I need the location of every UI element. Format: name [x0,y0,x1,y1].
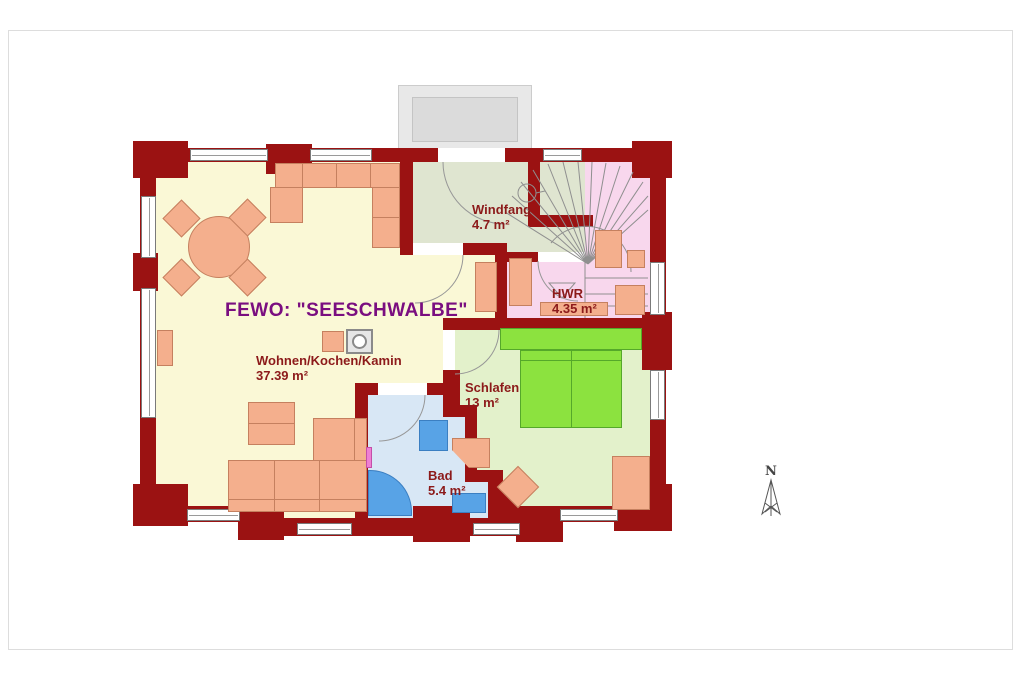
kitchen-counter [302,163,337,188]
room-bad-fill [368,417,465,470]
room-label-hwr: HWR 4.35 m² [552,286,597,316]
window [141,196,156,258]
entrance-canopy-inner [412,97,518,142]
wall-living-windfang [400,162,413,255]
fireplace-icon [346,329,373,354]
room-name: Wohnen/Kochen/Kamin [256,353,402,368]
sofa-seam [274,461,275,511]
toilet [419,420,448,451]
wall-pilaster [133,253,158,291]
room-area: 5.4 m² [428,483,466,498]
door-opening-living [413,243,463,255]
door-opening-hwr [538,252,578,262]
door-opening-entrance [438,148,505,162]
wall-bad-top [427,383,450,395]
hwr-cabinet [509,258,532,306]
towel-radiator [366,447,372,468]
bed-line [521,360,621,361]
hwr-appliance [627,250,645,268]
room-name: Windfang [472,202,531,217]
window [297,523,352,535]
room-area: 4.7 m² [472,217,531,232]
window [141,288,156,418]
window [190,149,268,161]
room-label-schlafen: Schlafen 13 m² [465,380,519,410]
window [650,262,665,315]
window [650,370,665,420]
window [543,149,582,161]
fireplace-ring [352,334,367,349]
floor-plan-page: FEWO: "SEESCHWALBE" Wohnen/Kochen/Kamin … [0,0,1024,683]
hwr-appliance [595,230,622,268]
sideboard [157,330,173,366]
kitchen-counter [372,217,400,248]
hwr-appliance [615,285,645,315]
door-opening-bad [378,383,427,395]
wall-pilaster [133,484,188,526]
wall-stair-stub [528,215,593,227]
room-bad-fill [368,395,443,417]
room-label-wohnen: Wohnen/Kochen/Kamin 37.39 m² [256,353,402,383]
wall-bad-schlafen [465,470,503,482]
wall-pilaster [516,506,563,542]
compass-north-label: N [765,464,777,479]
room-label-windfang: Windfang 4.7 m² [472,202,531,232]
room-area: 13 m² [465,395,519,410]
room-name: HWR [552,286,597,301]
kitchen-counter [372,187,400,218]
wall-pilaster [632,141,672,178]
window [473,523,520,535]
window [310,149,372,161]
room-label-bad: Bad 5.4 m² [428,468,466,498]
kitchen-counter [336,163,371,188]
wood-basket [322,331,344,352]
kitchen-counter [370,163,400,188]
wall-pilaster [133,141,188,178]
window [560,509,618,521]
room-name: Bad [428,468,466,483]
coffee-table-line [249,423,294,424]
bed-center-line [571,351,572,427]
plan-title: FEWO: "SEESCHWALBE" [225,300,468,322]
bedroom-wardrobe [612,456,650,510]
hall-cabinet [475,262,497,312]
sofa [228,460,367,512]
bed-headboard [500,328,642,350]
kitchen-counter [270,187,303,223]
room-area: 4.35 m² [552,301,597,316]
room-windfang-fill [528,227,590,252]
room-name: Schlafen [465,380,519,395]
kitchen-counter [275,163,303,188]
sofa-seam [229,499,366,500]
wall-bad-top [355,383,378,395]
room-area: 37.39 m² [256,368,402,383]
coffee-table [248,402,295,445]
door-opening-schlafen [443,330,455,370]
sofa-seam [319,461,320,511]
bed [520,350,622,428]
